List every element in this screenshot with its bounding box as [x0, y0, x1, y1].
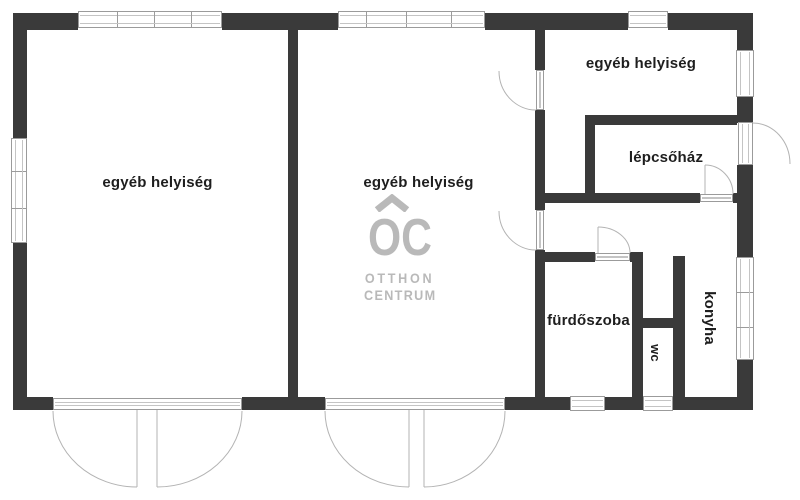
logo-text-centrum: CENTRUM [364, 287, 436, 303]
room-label-stairwell: lépcsőház [595, 149, 737, 166]
room-label-wc: wc [641, 338, 671, 368]
logo-letters: OC [368, 214, 432, 262]
watermark-logo: OC OTTHON CENTRUM [352, 194, 448, 303]
logo-text-otthon: OTTHON [365, 270, 434, 286]
room-label-left: egyéb helyiség [27, 174, 288, 191]
room-label-bathroom: fürdőszoba [545, 312, 632, 329]
room-label-middle: egyéb helyiség [302, 174, 535, 191]
room-label-top-right: egyéb helyiség [545, 55, 737, 72]
floor-plan: egyéb helyiség egyéb helyiség egyéb hely… [0, 0, 800, 500]
room-label-kitchen: konyha [685, 293, 735, 343]
